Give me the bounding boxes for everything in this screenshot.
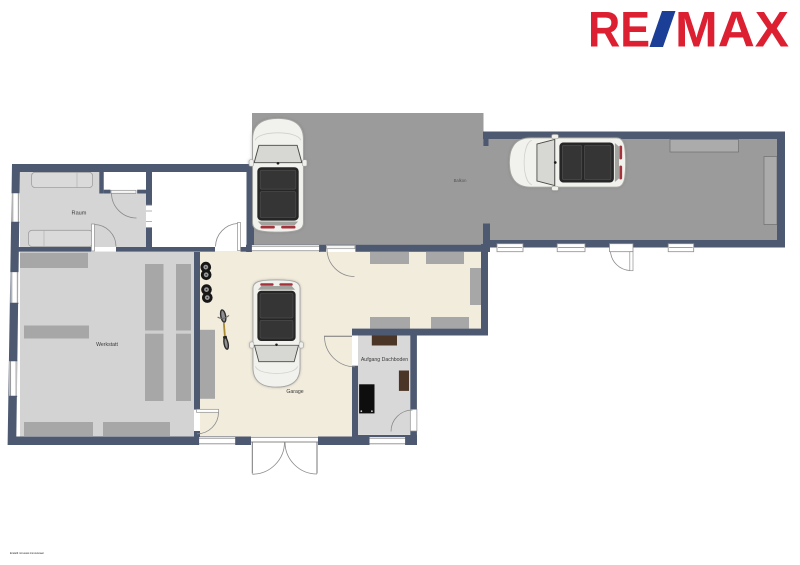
svg-text:Garage: Garage — [286, 389, 303, 395]
svg-text:Balkon: Balkon — [454, 178, 467, 183]
svg-text:RE: RE — [588, 2, 650, 58]
svg-text:Raum: Raum — [72, 211, 87, 217]
svg-text:MAX: MAX — [675, 2, 789, 58]
svg-text:Erstellt mit www.immoviewer: Erstellt mit www.immoviewer — [10, 551, 44, 555]
svg-text:Werkstatt: Werkstatt — [96, 342, 118, 348]
svg-text:Aufgang Dachboden: Aufgang Dachboden — [361, 357, 408, 363]
